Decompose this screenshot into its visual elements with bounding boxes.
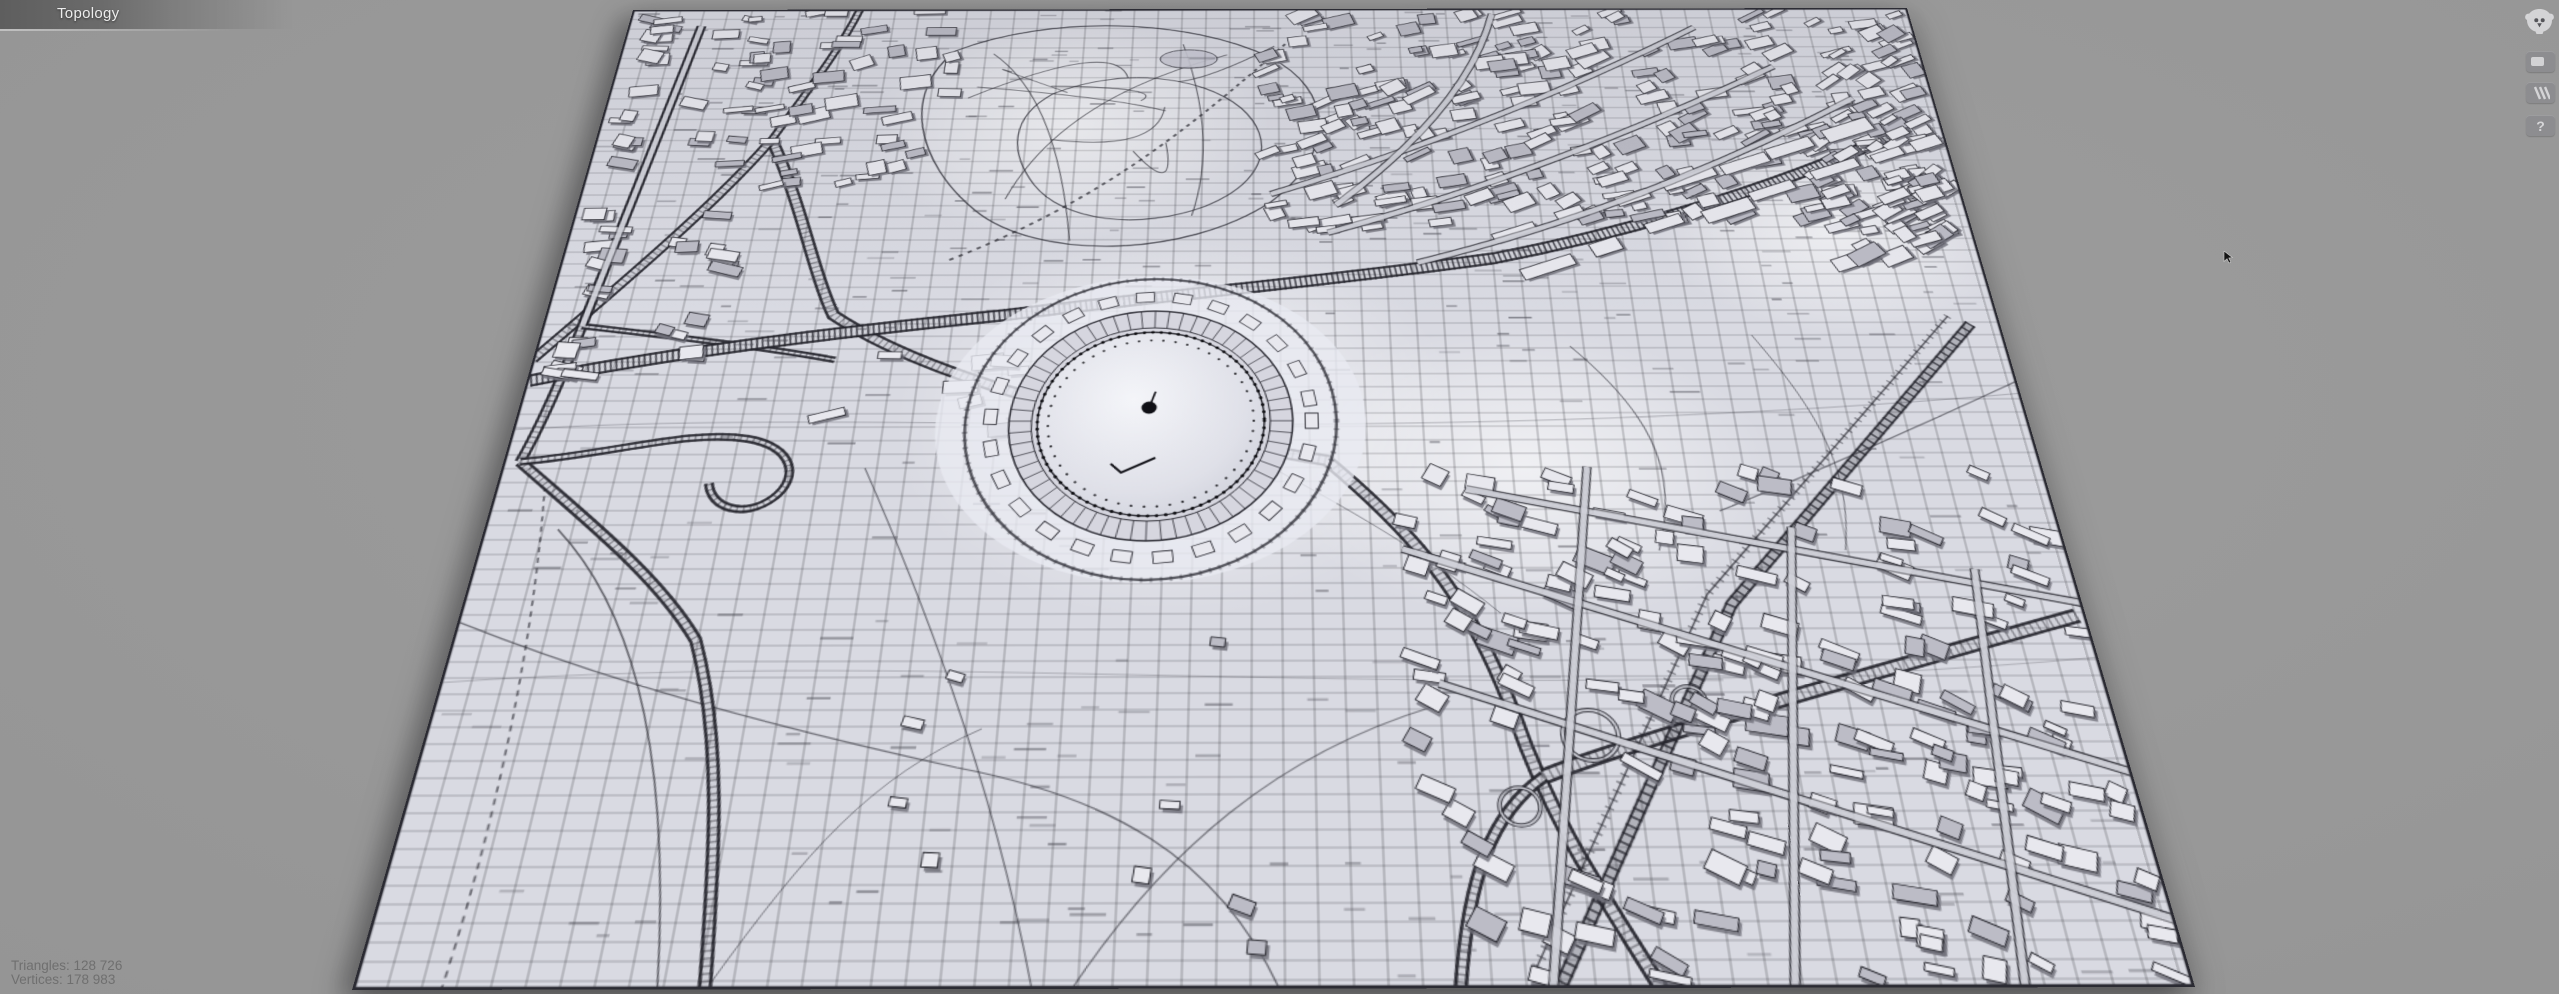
- viewer-mode-button[interactable]: [2526, 51, 2555, 72]
- city-map-wireframe: [352, 8, 2195, 990]
- monkey-head-icon[interactable]: [2524, 7, 2555, 41]
- vertices-count: Vertices: 178 983: [11, 973, 122, 987]
- topology-tab[interactable]: Topology: [0, 0, 292, 29]
- question-mark-icon: ?: [2536, 118, 2545, 134]
- city-mesh-shadow: [0, 0, 2559, 994]
- topology-tab-label: Topology: [57, 5, 119, 22]
- wireframe-stripes-button[interactable]: [2526, 82, 2555, 103]
- monkey-head-logo: [2524, 7, 2555, 41]
- help-button[interactable]: ?: [2526, 115, 2555, 136]
- rounded-square-icon: [2531, 57, 2544, 66]
- mesh-stats: Triangles: 128 726 Vertices: 178 983: [11, 959, 122, 987]
- triangles-count: Triangles: 128 726: [11, 959, 122, 973]
- diagonal-stripes-icon: [2532, 86, 2550, 100]
- mouse-cursor: [2223, 251, 2235, 270]
- city-mesh-plane: [352, 8, 2195, 990]
- viewport-3d[interactable]: Topology ? Triangles: 128 726 Vertices: …: [0, 0, 2559, 994]
